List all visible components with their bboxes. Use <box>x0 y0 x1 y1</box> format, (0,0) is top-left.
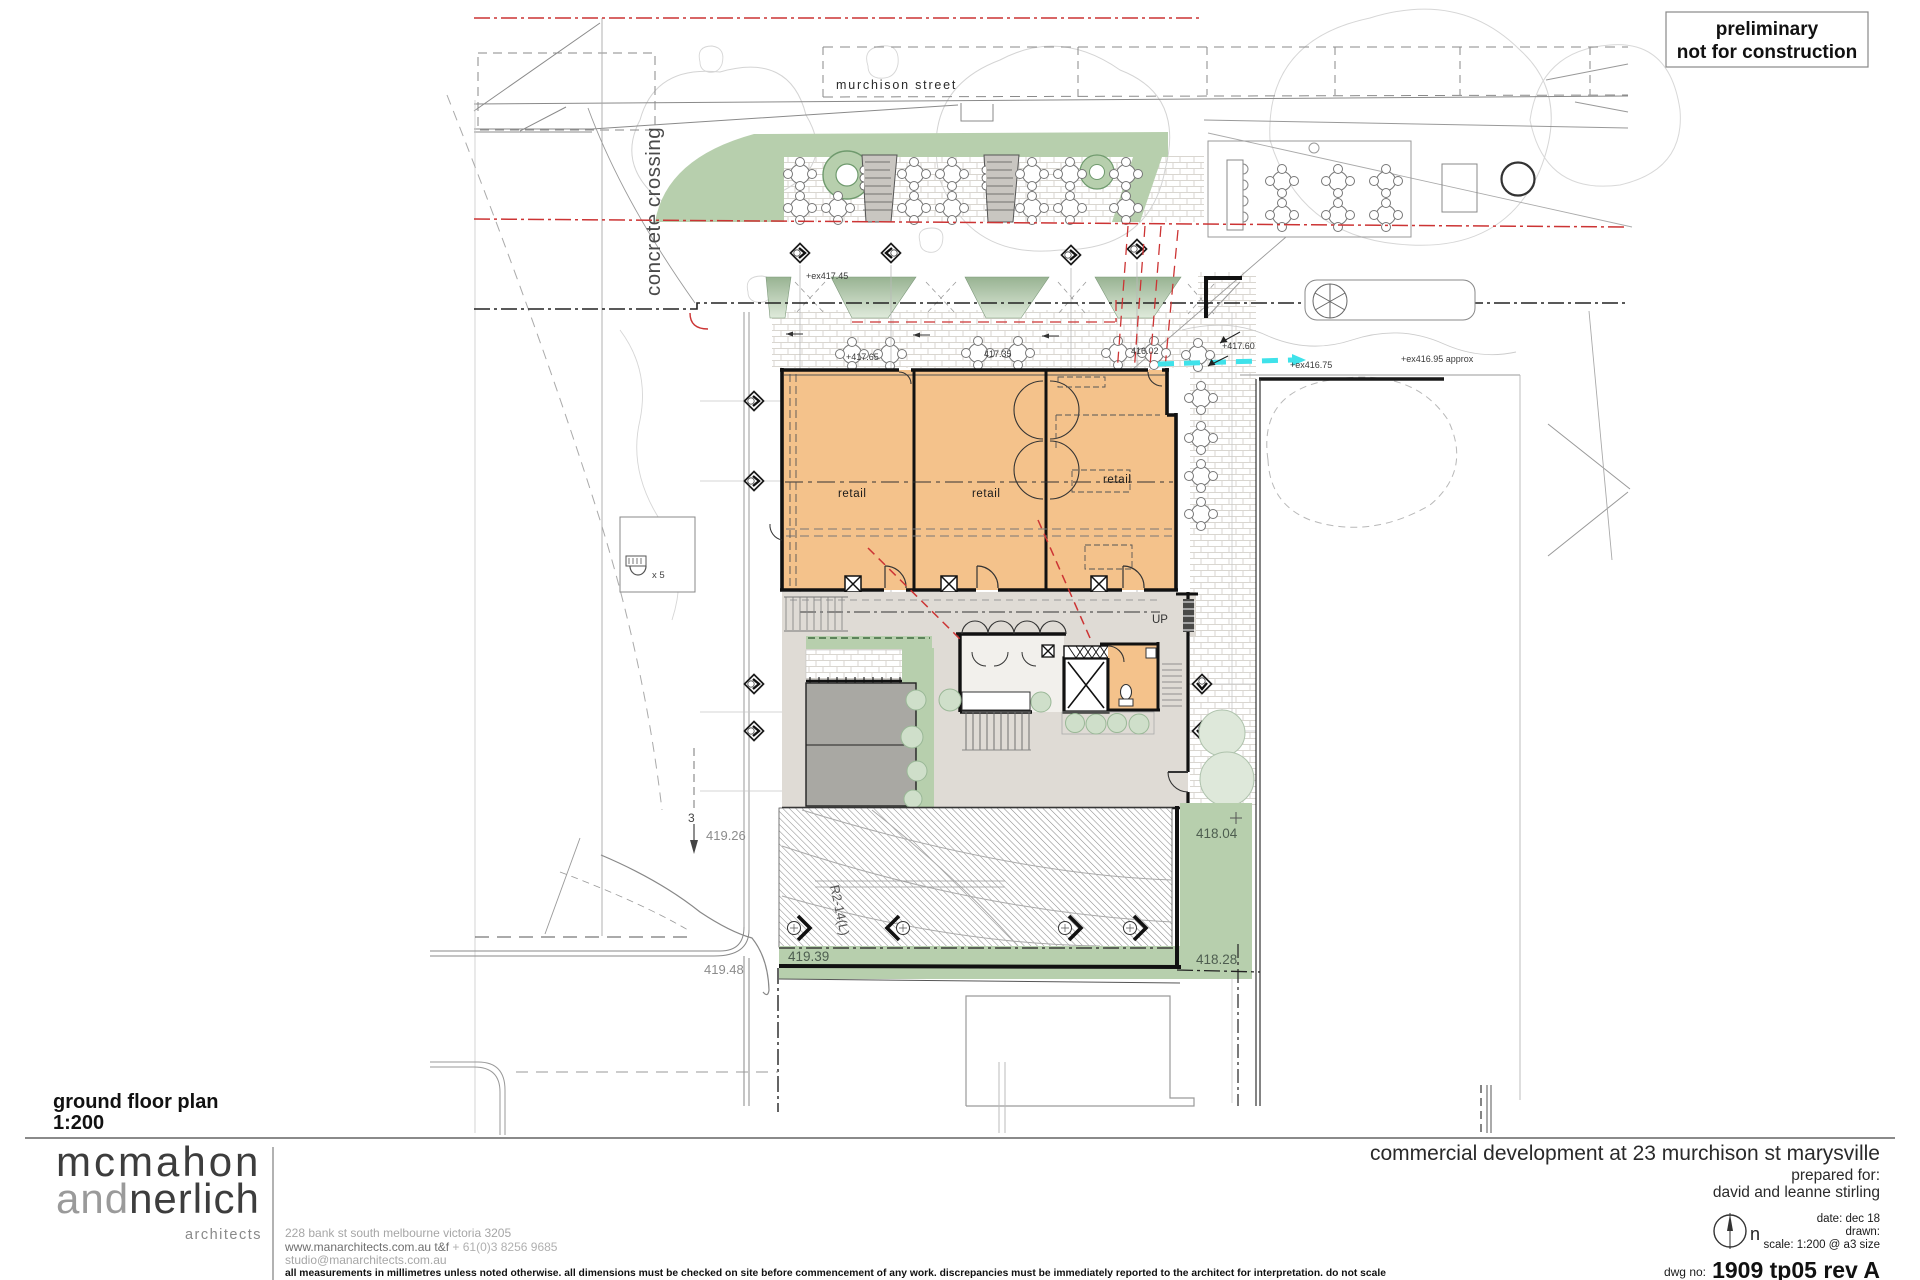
svg-text:419.26: 419.26 <box>706 828 746 843</box>
svg-text:228 bank st south melbourne vi: 228 bank st south melbourne victoria 320… <box>285 1226 511 1240</box>
svg-text:andnerlich: andnerlich <box>56 1175 260 1222</box>
svg-text:419.39: 419.39 <box>788 949 829 964</box>
svg-text:+417.65: +417.65 <box>846 352 879 362</box>
svg-text:www.manarchitects.com.au t&f: www.manarchitects.com.au t&f + 61(0)3 82… <box>284 1240 558 1254</box>
svg-text:x 5: x 5 <box>652 570 665 581</box>
svg-text:+ex417.45: +ex417.45 <box>806 271 848 281</box>
svg-text:417.35: 417.35 <box>984 349 1012 359</box>
svg-text:3: 3 <box>688 811 695 825</box>
svg-text:commercial development at 23 m: commercial development at 23 murchison s… <box>1370 1142 1880 1165</box>
svg-text:ground floor plan: ground floor plan <box>53 1091 219 1113</box>
svg-text:not for construction: not for construction <box>1677 42 1857 63</box>
svg-text:416.02: 416.02 <box>1131 346 1159 356</box>
svg-text:preliminary: preliminary <box>1716 19 1819 40</box>
svg-text:retail: retail <box>1103 474 1132 486</box>
svg-text:418.28: 418.28 <box>1196 952 1237 967</box>
svg-text:UP: UP <box>1152 614 1168 626</box>
svg-text:date: dec 18: date: dec 18 <box>1817 1213 1880 1225</box>
svg-text:murchison street: murchison street <box>836 78 957 92</box>
svg-text:+ex416.75: +ex416.75 <box>1290 360 1332 370</box>
svg-text:419.48: 419.48 <box>704 962 744 977</box>
svg-text:architects: architects <box>185 1227 262 1243</box>
svg-text:david and leanne stirling: david and leanne stirling <box>1713 1184 1880 1201</box>
svg-text:+ex416.95 approx: +ex416.95 approx <box>1401 354 1474 364</box>
svg-text:prepared for:: prepared for: <box>1791 1167 1880 1184</box>
svg-text:retail: retail <box>838 488 867 500</box>
svg-text:retail: retail <box>972 488 1001 500</box>
svg-text:all measurements in millimetre: all measurements in millimetres unless n… <box>285 1268 1386 1279</box>
svg-text:scale: 1:200 @ a3 size: scale: 1:200 @ a3 size <box>1763 1239 1880 1251</box>
svg-text:+417.60: +417.60 <box>1222 341 1255 351</box>
svg-text:1:200: 1:200 <box>53 1112 104 1134</box>
svg-text:418.04: 418.04 <box>1196 826 1238 841</box>
svg-text:1909 tp05 rev A: 1909 tp05 rev A <box>1712 1257 1880 1280</box>
svg-text:drawn:: drawn: <box>1845 1226 1880 1238</box>
svg-text:studio@manarchitects.com.au: studio@manarchitects.com.au <box>285 1253 447 1267</box>
svg-text:dwg no:: dwg no: <box>1664 1265 1706 1279</box>
svg-text:n: n <box>1750 1224 1760 1244</box>
